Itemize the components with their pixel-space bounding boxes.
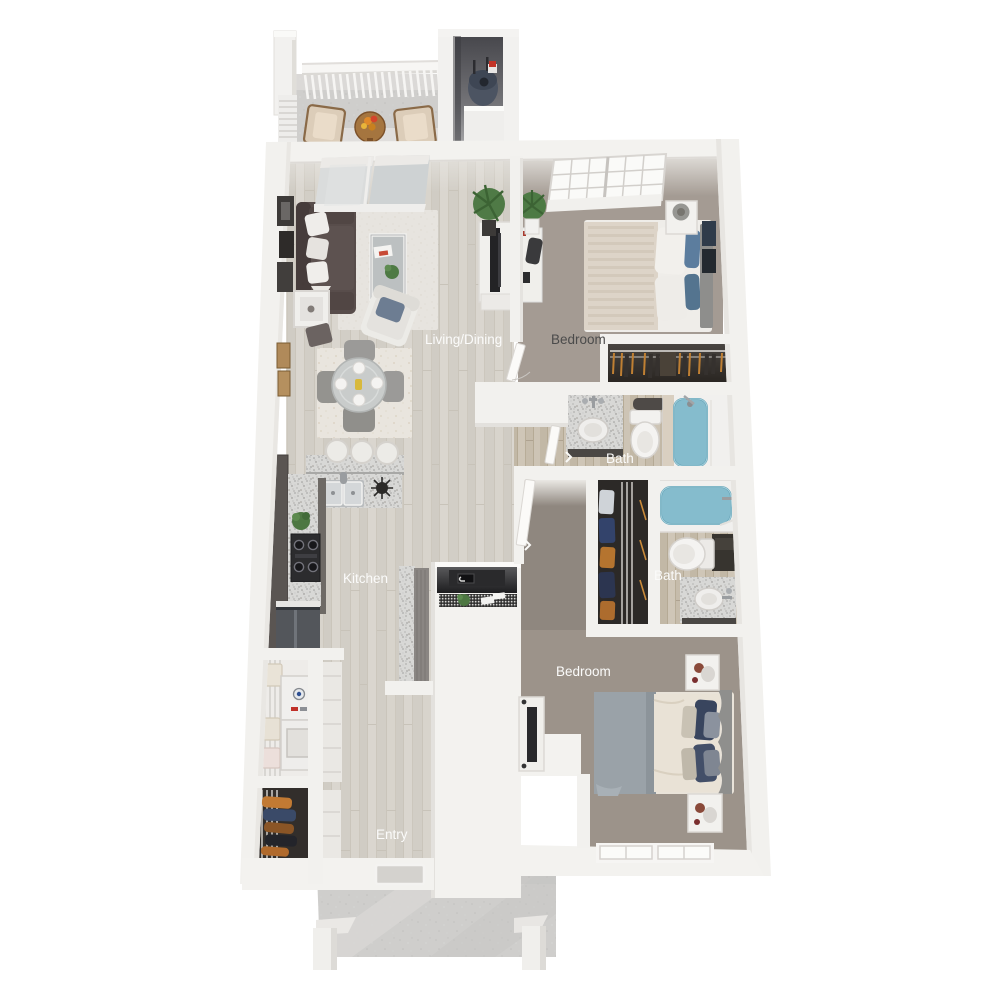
svg-text:Bath: Bath — [606, 451, 634, 466]
svg-text:Bath: Bath — [654, 568, 682, 583]
svg-text:Bedroom: Bedroom — [556, 664, 611, 679]
svg-text:Living/Dining: Living/Dining — [425, 332, 502, 347]
svg-text:Kitchen: Kitchen — [343, 571, 388, 586]
svg-text:Bedroom: Bedroom — [551, 332, 606, 347]
svg-text:Entry: Entry — [376, 827, 408, 842]
